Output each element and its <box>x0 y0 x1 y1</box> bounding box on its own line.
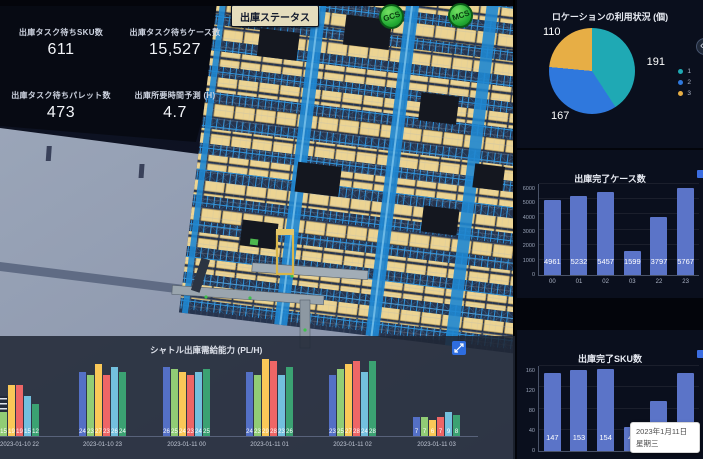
bar-value-label: 24 <box>361 429 368 435</box>
bar-value-label: 154 <box>591 433 620 442</box>
y-axis: 16012080400 <box>519 366 539 452</box>
bar-value-label: 7 <box>423 429 426 435</box>
x-tick-label: 00 <box>538 279 567 285</box>
bar[interactable]: 23 <box>329 375 336 436</box>
bar-value-label: 27 <box>345 429 352 435</box>
legend-item[interactable]: 1 <box>678 68 691 75</box>
bar-value-label: 24 <box>246 429 253 435</box>
x-tick-label: 01 <box>564 279 593 285</box>
bar-value-label: 7 <box>439 429 442 435</box>
kpi-sku-wait: 出庫タスク待ちSKU数 611 <box>4 18 118 67</box>
bar-value-label: 8 <box>455 429 458 435</box>
bar-group: 7767982023-01-11 03 <box>413 355 460 436</box>
pie-slices[interactable] <box>549 28 635 114</box>
bar[interactable]: 24 <box>361 372 368 436</box>
kpi-case-wait: 出庫タスク待ちケース数 15,527 <box>118 18 232 67</box>
bar[interactable]: 23 <box>187 375 194 436</box>
x-tick-label: 2023-01-10 23 <box>83 442 122 448</box>
shuttle-capacity-chart: 15191915122023-01-10 222423272326242023-… <box>0 355 478 437</box>
y-tick-label: 2000 <box>523 243 535 249</box>
bar-group: 2423272326242023-01-10 23 <box>79 355 126 436</box>
bar-slot: 545702 <box>597 184 614 275</box>
bar[interactable]: 19 <box>16 385 23 436</box>
x-tick-label: 02 <box>591 279 620 285</box>
shuttle-capacity-panel: シャトル出庫需給能力 (PL/H) 15191915122023-01-10 2… <box>0 336 515 459</box>
bar-value-label: 147 <box>538 433 567 442</box>
legend-label: 2 <box>687 79 691 86</box>
gridline <box>539 365 699 366</box>
expand-icon[interactable] <box>452 341 466 355</box>
pie-value-label: 191 <box>647 56 665 68</box>
tooltip-date: 2023年1月11日 <box>636 426 694 438</box>
kpi-grid: 出庫タスク待ちSKU数 611 出庫タスク待ちケース数 15,527 出庫タスク… <box>4 18 232 130</box>
bar[interactable]: 154 <box>597 369 614 451</box>
bar-value-label: 27 <box>95 429 102 435</box>
bar[interactable]: 5457 <box>597 192 614 275</box>
bar[interactable]: 25 <box>337 369 344 436</box>
bar[interactable]: 4961 <box>544 200 561 275</box>
kpi-label: 出庫タスク待ちSKU数 <box>19 27 103 38</box>
bar[interactable]: 1599 <box>624 251 641 275</box>
pie-value-label: 167 <box>551 110 569 122</box>
bar-value-label: 24 <box>195 429 202 435</box>
bar[interactable]: 25 <box>203 369 210 436</box>
bar-value-label: 28 <box>369 429 376 435</box>
bar[interactable]: 15 <box>24 396 31 436</box>
kpi-time-forecast: 出庫所要時間予測 (H) 4.7 <box>118 81 232 130</box>
bar-slot: 153 <box>570 366 587 451</box>
bar-value-label: 6 <box>431 429 434 435</box>
chart-title: 出庫完了SKU数 <box>517 330 703 365</box>
x-tick-label: 2023-01-11 02 <box>333 442 372 448</box>
bar[interactable]: 153 <box>570 370 587 451</box>
bar-value-label: 153 <box>564 433 593 442</box>
bar[interactable]: 23 <box>103 375 110 436</box>
bar[interactable]: 24 <box>195 372 202 436</box>
bar[interactable]: 8 <box>453 415 460 436</box>
y-tick-label: 160 <box>526 368 535 374</box>
bar-value-label: 24 <box>79 429 86 435</box>
bar-value-label: 12 <box>32 429 39 435</box>
bar[interactable]: 29 <box>262 359 269 436</box>
gridline <box>539 213 699 214</box>
bar-value-label: 3797 <box>644 257 673 266</box>
bar-slot: 154 <box>597 366 614 451</box>
bar[interactable]: 24 <box>79 372 86 436</box>
location-usage-panel: ロケーションの利用状況 (個) 191 167 110 1 2 3 ‹ <box>517 0 703 148</box>
clipped-bar-stripes <box>0 396 8 412</box>
bar[interactable]: 19 <box>8 385 15 436</box>
bar-value-label: 15 <box>24 429 31 435</box>
bar[interactable]: 7 <box>421 417 428 436</box>
bar[interactable]: 27 <box>95 364 102 436</box>
legend-label: 1 <box>687 68 691 75</box>
x-tick-label: 03 <box>618 279 647 285</box>
bar-value-label: 29 <box>262 429 269 435</box>
kpi-value: 473 <box>47 104 75 122</box>
kpi-pallet-wait: 出庫タスク待ちパレット数 473 <box>4 81 118 130</box>
x-tick-label: 2023-01-11 03 <box>417 442 456 448</box>
bar-value-label: 25 <box>203 429 210 435</box>
x-tick-label: 23 <box>671 279 700 285</box>
bar-value-label: 24 <box>179 429 186 435</box>
y-tick-label: 40 <box>529 428 535 434</box>
bar-slot: 576723 <box>677 184 694 275</box>
y-tick-label: 0 <box>532 272 535 278</box>
y-axis: 6000500040003000200010000 <box>519 184 539 276</box>
bar-slot: 147 <box>544 366 561 451</box>
bar-value-label: 23 <box>329 429 336 435</box>
pie-legend: 1 2 3 <box>678 68 691 97</box>
bar-value-label: 19 <box>8 429 15 435</box>
bar[interactable]: 23 <box>278 375 285 436</box>
y-tick-label: 6000 <box>523 186 535 192</box>
bar-value-label: 9 <box>447 429 450 435</box>
bar[interactable]: 5232 <box>570 196 587 275</box>
x-tick-label: 22 <box>644 279 673 285</box>
gridline <box>539 244 699 245</box>
legend-dot <box>678 69 683 74</box>
bar-value-label: 23 <box>103 429 110 435</box>
kpi-label: 出庫タスク待ちケース数 <box>130 27 221 38</box>
outbound-status-button[interactable]: 出庫ステータス <box>231 5 319 27</box>
bar-slot: 496100 <box>544 184 561 275</box>
bar[interactable]: 147 <box>544 373 561 451</box>
legend-dot <box>678 80 683 85</box>
chart-title: 出庫完了ケース数 <box>517 150 703 185</box>
bar-value-label: 5232 <box>564 257 593 266</box>
bar-value-label: 28 <box>270 429 277 435</box>
y-tick-label: 1000 <box>523 258 535 264</box>
x-tick-label: 2023-01-10 22 <box>0 442 39 448</box>
completed-cases-panel: 出庫完了ケース数 6000500040003000200010000 49610… <box>517 150 703 298</box>
bar-value-label: 5767 <box>671 257 700 266</box>
bar-group: 2423292823262023-01-11 01 <box>246 355 293 436</box>
chevron-left-icon[interactable]: ‹ <box>696 38 703 55</box>
bar-value-label: 5457 <box>591 257 620 266</box>
bar[interactable]: 23 <box>87 375 94 436</box>
chart-title: ロケーションの利用状況 (個) <box>517 0 703 23</box>
bar[interactable]: 24 <box>246 372 253 436</box>
bar-group: 2325272824282023-01-11 02 <box>329 355 376 436</box>
y-tick-label: 120 <box>526 388 535 394</box>
bar[interactable]: 27 <box>345 364 352 436</box>
pie-value-label: 110 <box>543 26 561 38</box>
bar[interactable]: 7 <box>413 417 420 436</box>
y-tick-label: 4000 <box>523 215 535 221</box>
bar-value-label: 26 <box>111 429 118 435</box>
bar[interactable]: 24 <box>179 372 186 436</box>
kpi-label: 出庫タスク待ちパレット数 <box>11 90 111 101</box>
bar[interactable]: 9 <box>445 412 452 436</box>
bar-group: 2625242324252023-01-11 00 <box>163 355 210 436</box>
kpi-value: 611 <box>47 41 74 59</box>
bar-value-label: 23 <box>187 429 194 435</box>
bar-value-label: 4961 <box>538 257 567 266</box>
bar[interactable]: 3797 <box>650 217 667 275</box>
pie-chart: 191 167 110 <box>549 28 635 114</box>
bar[interactable]: 7 <box>437 417 444 436</box>
legend-swatch-clipped[interactable] <box>697 350 703 358</box>
bar[interactable]: 25 <box>171 369 178 436</box>
bar-value-label: 25 <box>337 429 344 435</box>
bar[interactable]: 5767 <box>677 188 694 275</box>
mcs-status-badge[interactable]: MCS <box>448 3 473 28</box>
bar-value-label: 15 <box>0 429 7 435</box>
kpi-value: 4.7 <box>163 104 187 122</box>
bar-value-label: 24 <box>119 429 126 435</box>
gridline <box>539 198 699 199</box>
bar[interactable]: 24 <box>119 372 126 436</box>
gridline <box>539 386 699 387</box>
bar-value-label: 23 <box>254 429 261 435</box>
y-tick-label: 0 <box>532 448 535 454</box>
legend-label: 3 <box>687 90 691 97</box>
right-chart-column: ロケーションの利用状況 (個) 191 167 110 1 2 3 ‹ 出庫完了… <box>515 0 703 459</box>
bar-slot: 523201 <box>570 184 587 275</box>
bar-slot: 379722 <box>650 184 667 275</box>
bar-value-label: 28 <box>353 429 360 435</box>
x-tick-label: 2023-01-11 01 <box>250 442 289 448</box>
bar-value-label: 1599 <box>618 257 647 266</box>
bar[interactable]: 28 <box>369 361 376 436</box>
chart-tooltip: 2023年1月11日 星期三 <box>630 422 700 453</box>
bar-value-label: 23 <box>87 429 94 435</box>
kpi-label: 出庫所要時間予測 (H) <box>135 90 216 101</box>
x-tick-label: 2023-01-11 00 <box>167 442 206 448</box>
dashboard-root: 出庫タスク待ちSKU数 611 出庫タスク待ちケース数 15,527 出庫タスク… <box>0 0 703 459</box>
bar-value-label: 23 <box>278 429 285 435</box>
completed-cases-chart: 6000500040003000200010000 49610052320154… <box>519 184 699 276</box>
y-tick-label: 3000 <box>523 229 535 235</box>
mcs-label: MCS <box>451 8 471 22</box>
bar[interactable]: 26 <box>111 367 118 436</box>
legend-item[interactable]: 2 <box>678 79 691 86</box>
bar[interactable]: 28 <box>353 361 360 436</box>
bar-value-label: 26 <box>163 429 170 435</box>
legend-dot <box>678 91 683 96</box>
bar-value-label: 7 <box>415 429 418 435</box>
bar-value-label: 26 <box>286 429 293 435</box>
bar[interactable]: 26 <box>163 367 170 436</box>
legend-swatch-clipped[interactable] <box>697 170 703 178</box>
gcs-label: GCS <box>382 10 401 24</box>
bar[interactable]: 12 <box>32 404 39 436</box>
bar-plot: 496100523201545702159903379722576723 <box>539 184 699 276</box>
bar[interactable]: 28 <box>270 361 277 436</box>
gcs-status-badge[interactable]: GCS <box>379 4 404 29</box>
legend-item[interactable]: 3 <box>678 90 691 97</box>
gridline <box>539 408 699 409</box>
y-tick-label: 80 <box>529 408 535 414</box>
bar[interactable]: 6 <box>429 420 436 436</box>
gridline <box>539 183 699 184</box>
tooltip-weekday: 星期三 <box>636 438 694 450</box>
bar[interactable]: 23 <box>254 375 261 436</box>
bar-value-label: 19 <box>16 429 23 435</box>
y-tick-label: 5000 <box>523 200 535 206</box>
kpi-value: 15,527 <box>149 41 201 59</box>
bar-slot: 159903 <box>624 184 641 275</box>
bar-value-label: 25 <box>171 429 178 435</box>
bar[interactable]: 26 <box>286 367 293 436</box>
gridline <box>539 229 699 230</box>
